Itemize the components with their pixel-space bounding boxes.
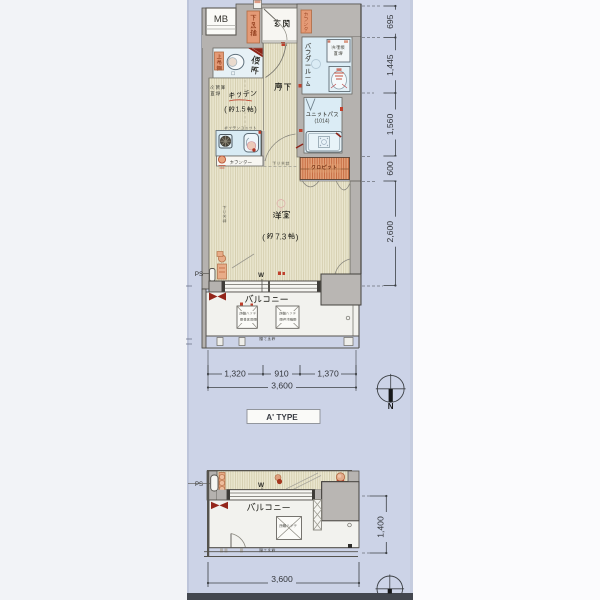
svg-text:1,400: 1,400 bbox=[376, 516, 386, 538]
svg-text:3,600: 3,600 bbox=[271, 381, 293, 391]
svg-text:): ) bbox=[254, 105, 257, 114]
svg-text:A' TYPE: A' TYPE bbox=[266, 413, 298, 422]
svg-text:1,320: 1,320 bbox=[224, 369, 246, 379]
svg-text:910: 910 bbox=[274, 369, 289, 379]
svg-text:600: 600 bbox=[385, 161, 395, 176]
svg-text:MB: MB bbox=[214, 14, 228, 25]
svg-text:W: W bbox=[258, 272, 264, 279]
svg-text:1,445: 1,445 bbox=[385, 54, 395, 76]
svg-text:3,600: 3,600 bbox=[271, 574, 293, 584]
svg-text:(: ( bbox=[262, 232, 265, 242]
svg-text:(1014): (1014) bbox=[315, 119, 330, 125]
svg-text:7.3: 7.3 bbox=[275, 233, 287, 242]
svg-text:695: 695 bbox=[385, 14, 395, 29]
svg-text:PS: PS bbox=[195, 482, 203, 488]
svg-text:1.5: 1.5 bbox=[236, 105, 246, 114]
svg-text:1,370: 1,370 bbox=[317, 369, 339, 379]
svg-text:): ) bbox=[296, 232, 299, 242]
svg-text:PS: PS bbox=[195, 271, 204, 278]
svg-text:1,560: 1,560 bbox=[385, 114, 395, 136]
svg-text:W: W bbox=[258, 482, 265, 489]
svg-text:2,600: 2,600 bbox=[385, 221, 395, 243]
svg-text:(: ( bbox=[224, 105, 227, 114]
svg-text:N: N bbox=[388, 402, 394, 411]
